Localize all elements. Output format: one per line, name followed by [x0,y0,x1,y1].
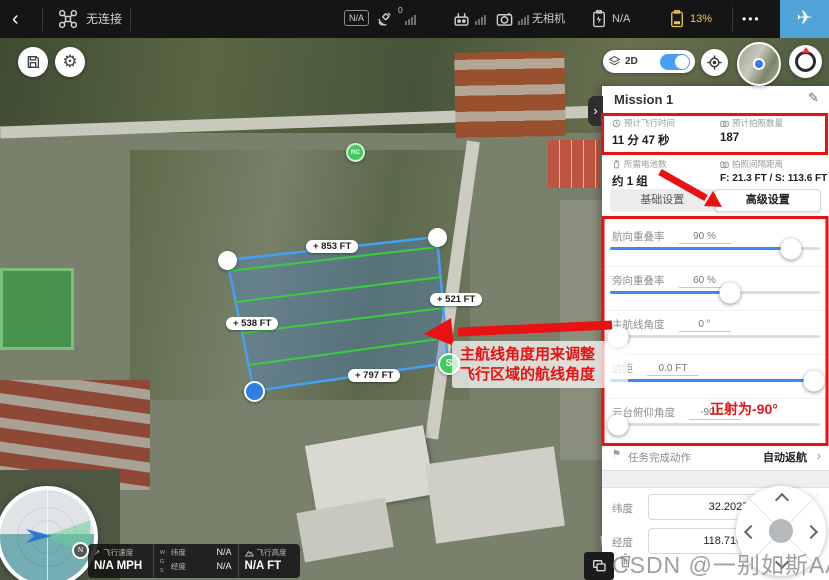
edge-length-label: + 797 FT [348,369,400,382]
chevron-right-icon: › [816,447,821,463]
slider-label: 航向重叠率 [612,229,665,244]
rc-battery-value: N/A [612,0,630,38]
slider-course-overlap: 航向重叠率90 % [602,222,829,267]
aircraft-battery-icon [668,9,686,29]
route-start-marker[interactable]: S [438,353,460,375]
slider-label: 旁向重叠率 [612,273,665,288]
slider-track[interactable] [610,423,820,426]
camera-status: 无相机 [532,0,565,38]
polygon-vertex-handle[interactable] [428,228,447,247]
copy-layers-icon [591,558,607,574]
compass-north-badge: N [72,542,89,559]
back-button[interactable]: ‹ [12,0,19,38]
gear-icon: ⚙ [62,52,77,72]
slider-fill [610,247,791,250]
slider-route-angle: 主航线角度0 ° [602,310,829,355]
dpad-center-button[interactable] [769,519,793,543]
slider-value-field[interactable]: 0 ° [679,319,731,332]
mission-planning-app: S RC + 853 FT + 521 FT + 538 FT + 797 FT… [0,0,829,580]
dpad-down-arrow[interactable] [775,555,789,569]
panel-section-divider [602,470,829,488]
delete-mission-icon[interactable] [618,552,633,569]
plane-icon: ✈ [797,8,813,29]
slider-track[interactable] [610,379,820,382]
mission-title: Mission 1 [614,92,673,107]
edge-length-label: + 521 FT [430,293,482,306]
layers-icon [608,55,621,68]
rc-signal-bars [475,15,486,25]
aircraft-heading-arrow [26,527,52,545]
gps-count: 0 [398,5,403,15]
flight-mode-badge: N/A [344,10,369,26]
slider-fill [610,291,730,294]
top-status-bar: ‹ 无连接 N/A 0 无相机 N/A [0,0,829,38]
slider-margin: 边距0.0 FT [602,354,829,399]
latitude-label: 纬度 [612,501,633,516]
more-menu-button[interactable]: ••• [742,0,761,38]
drone-icon [58,9,78,29]
tab-advanced-settings[interactable]: 高级设置 [715,189,822,212]
slider-track[interactable] [610,291,820,294]
finish-action-label: 任务完成动作 [628,450,691,465]
telemetry-altitude: 飞行高度 N/A FT [239,544,300,578]
slider-value-field[interactable]: 0.0 FT [647,363,699,376]
map-mode-pill: 2D [603,50,695,73]
mission-panel: Mission 1 ✎ 预计飞行时间 11 分 47 秒 预计拍照数量 187 … [602,86,829,580]
tab-basic-settings[interactable]: 基础设置 [610,189,715,212]
finish-action-value: 自动返航 [763,449,807,465]
crs-label: WGS [160,549,167,575]
slider-track[interactable] [610,247,820,250]
polygon-vertex-selected[interactable] [244,381,265,402]
slider-handle[interactable] [780,238,801,259]
slider-handle[interactable] [608,326,629,347]
map-settings-button[interactable]: ⚙ [55,47,85,77]
clock-icon [612,119,621,128]
camera-link-icon [495,10,514,29]
map-view-label: 2D [625,56,638,67]
slider-track[interactable] [610,335,820,338]
panel-collapse-handle[interactable]: › [588,96,603,126]
camera-icon [720,119,729,128]
finish-action-row[interactable]: ⚑ 任务完成动作 自动返航 › [602,446,829,468]
telemetry-bar: ↗飞行速度 N/A MPH WGS 纬度N/A 经度N/A 飞行高度 N/A F… [88,544,300,578]
stat-photo-count: 预计拍照数量 187 [720,117,783,144]
slider-handle[interactable] [608,414,629,435]
stat-flight-time: 预计飞行时间 11 分 47 秒 [612,117,675,148]
compass-orientation-button[interactable] [789,45,822,78]
flag-icon: ⚑ [612,449,621,460]
aircraft-battery-percent: 13% [690,0,712,38]
slider-handle[interactable] [719,282,740,303]
minimap-position-dot [753,58,765,70]
compass-needle [802,47,810,53]
settings-tabs: 基础设置 高级设置 [610,189,821,212]
polygon-vertex-handle[interactable] [218,251,237,270]
rc-battery-icon [590,9,608,29]
edit-mission-icon[interactable]: ✎ [808,90,819,106]
camera-icon [720,160,729,169]
slider-handle[interactable] [803,370,824,391]
takeoff-button[interactable]: ✈ [780,0,829,38]
minimap-thumbnail[interactable] [737,42,781,86]
telemetry-coordinates: WGS 纬度N/A 经度N/A [154,544,239,578]
stat-photo-interval: 拍照间隔距离 F: 21.3 FT / S: 113.6 FT [720,158,827,184]
camera-signal-bars [518,15,529,25]
stat-batteries-needed: 所需电池数 约 1 组 [612,158,667,189]
connection-status: 无连接 [86,0,122,38]
slider-side-overlap: 旁向重叠率60 % [602,266,829,311]
save-mission-button[interactable] [18,47,48,77]
gps-satellite-icon [376,10,394,28]
panel-header: Mission 1 ✎ [602,86,829,114]
slider-label: 边距 [612,361,633,376]
edge-length-label: + 538 FT [226,317,278,330]
compass-ring [795,51,816,72]
speed-arrow-icon: ↗ [94,548,100,557]
dpad-right-arrow[interactable] [804,525,818,539]
nudge-dpad[interactable] [736,486,826,576]
slider-value-field[interactable]: 90 % [679,231,731,244]
longitude-label: 经度 [612,535,633,550]
dpad-up-arrow[interactable] [775,493,789,507]
crosshair-icon [706,54,723,71]
slider-gimbal-pitch: 云台俯仰角度-90.0 ° [602,398,829,442]
locate-me-button[interactable] [701,49,728,76]
map-2d-toggle[interactable] [660,54,690,70]
gps-signal-bars [405,15,416,25]
slider-value-field[interactable]: -90.0 ° [689,407,741,420]
edge-length-label: + 853 FT [306,240,358,253]
altitude-icon [245,549,254,557]
telemetry-speed: ↗飞行速度 N/A MPH [88,544,154,578]
map-source-button[interactable] [584,552,614,580]
rc-icon [452,10,471,29]
dpad-left-arrow[interactable] [744,525,758,539]
rc-location-marker: RC [346,143,365,162]
toggle-knob [675,55,689,69]
save-icon [25,54,41,70]
battery-icon [612,160,621,169]
slider-fill [610,379,814,382]
